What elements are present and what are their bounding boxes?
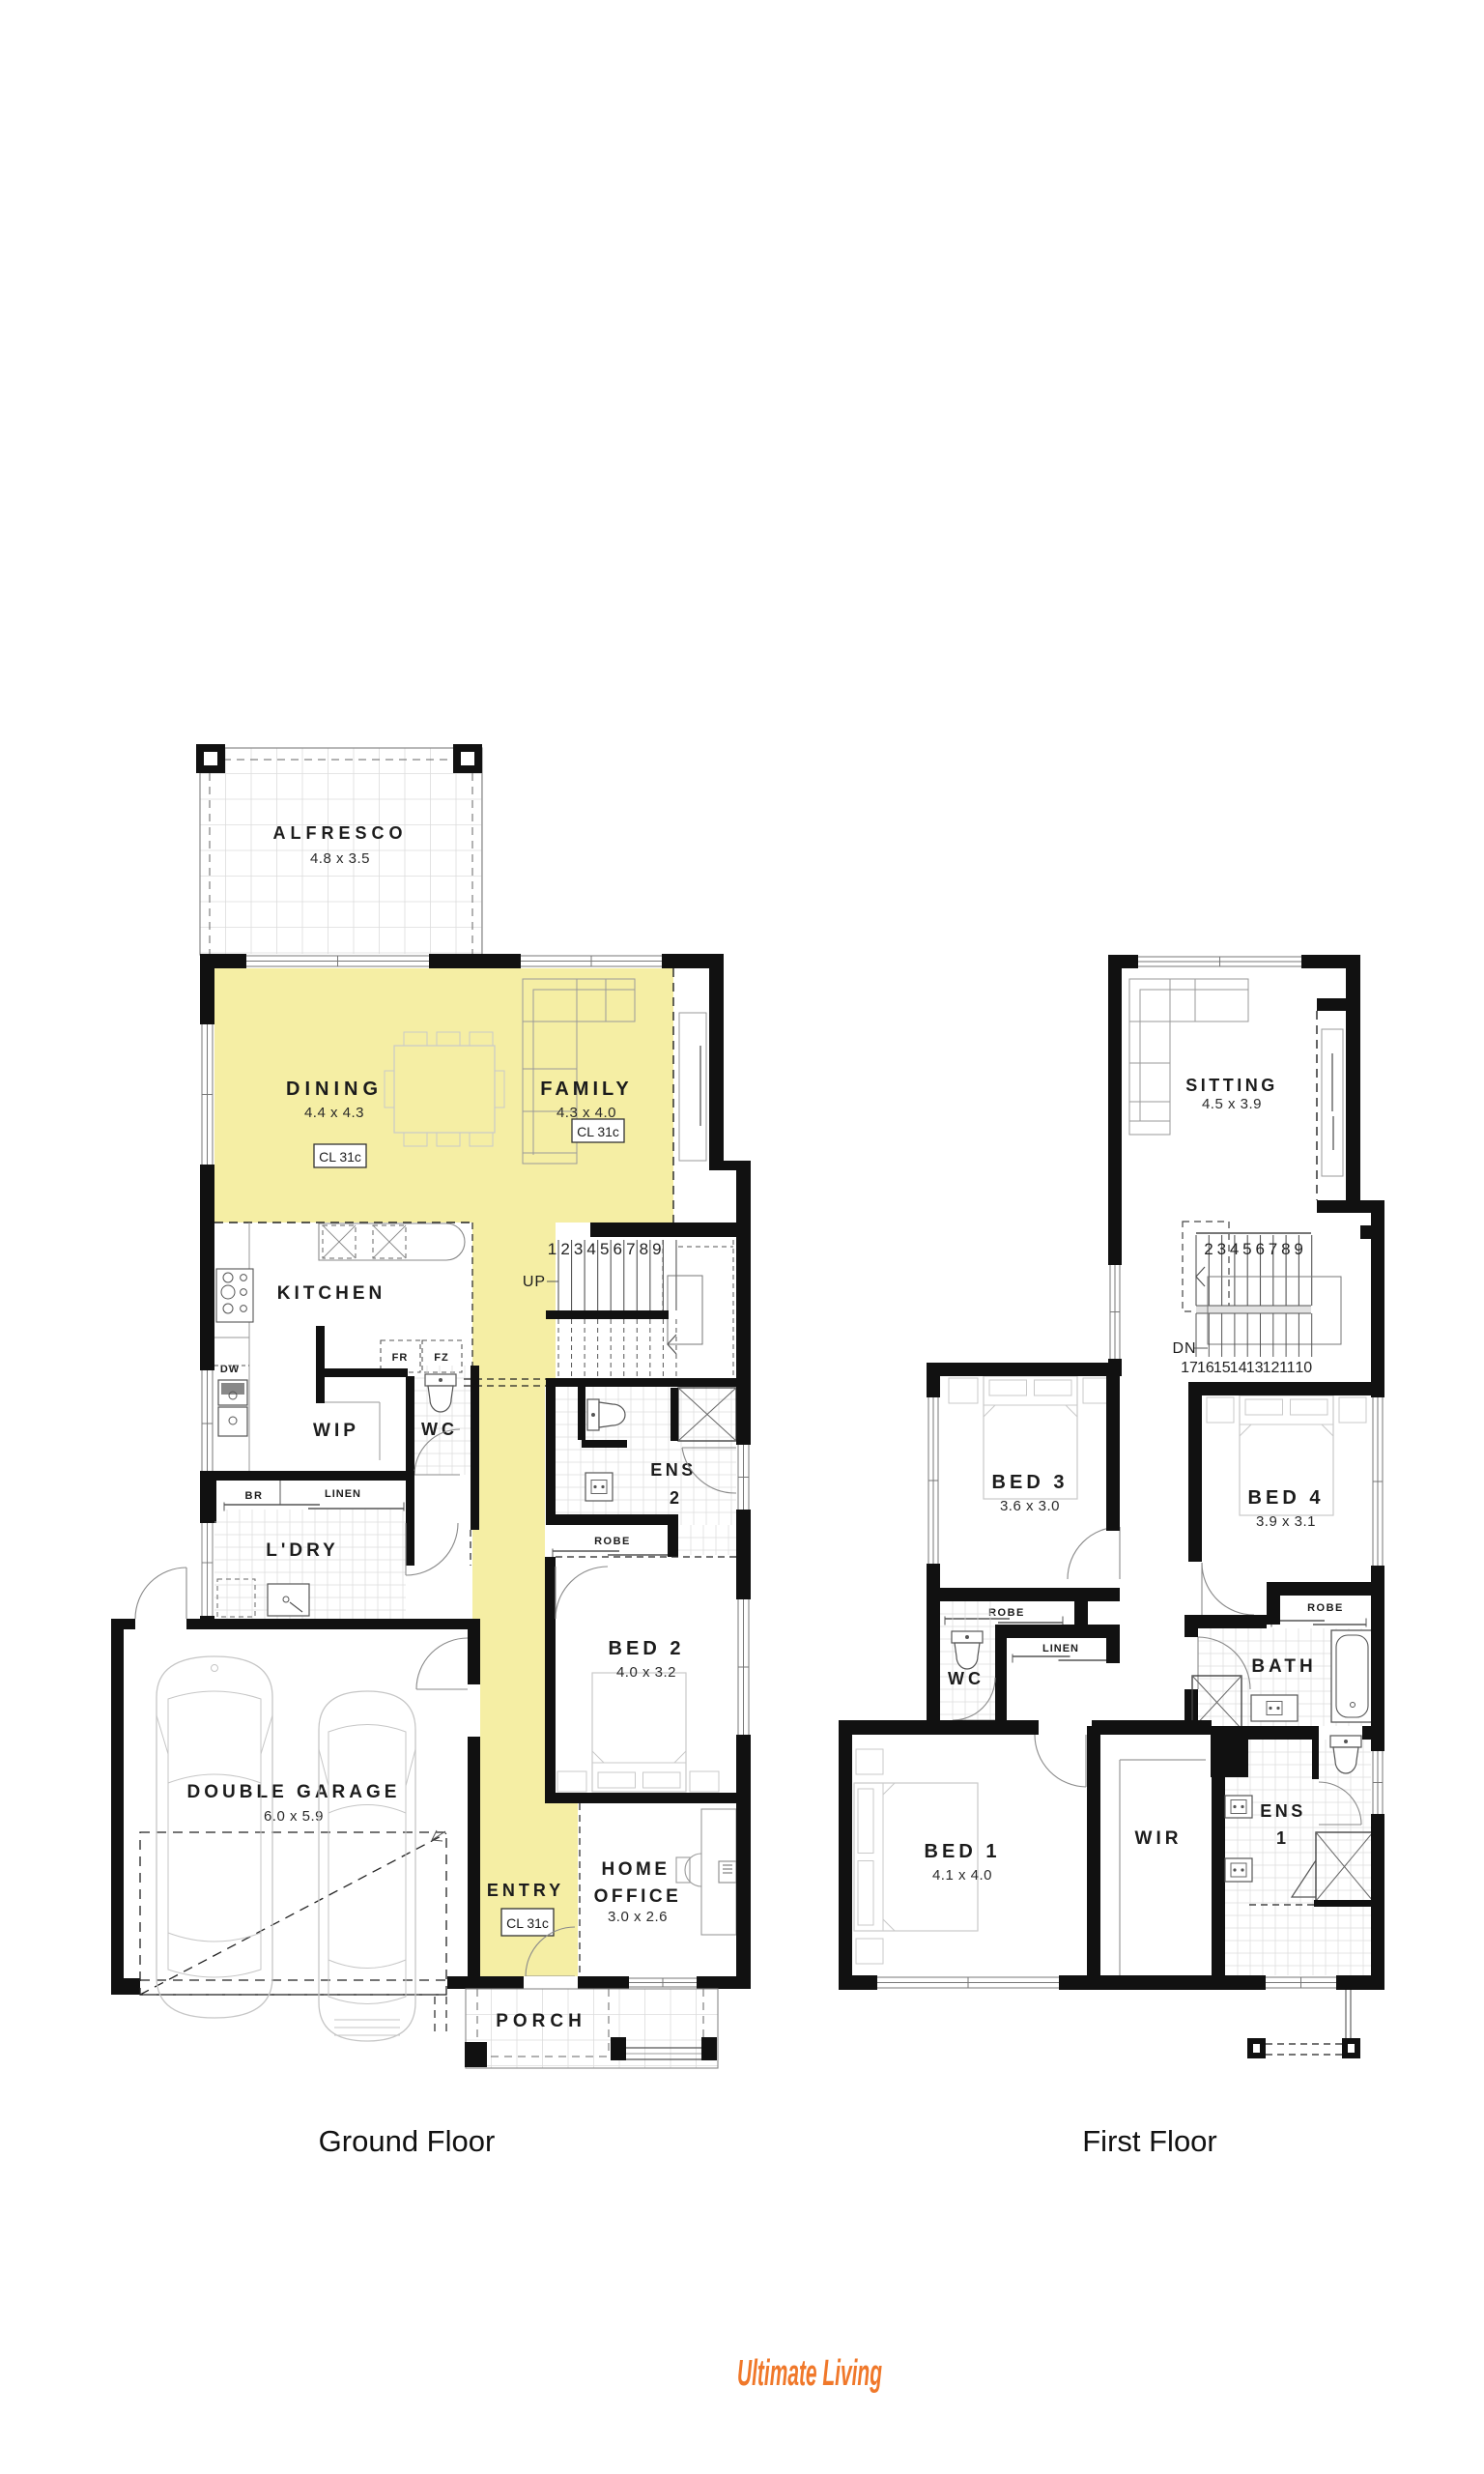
svg-text:ROBE: ROBE bbox=[988, 1607, 1025, 1619]
svg-text:7: 7 bbox=[626, 1240, 635, 1258]
svg-text:1: 1 bbox=[548, 1240, 556, 1258]
svg-text:15: 15 bbox=[1213, 1360, 1231, 1376]
svg-text:BED 4: BED 4 bbox=[1248, 1487, 1325, 1509]
svg-text:17: 17 bbox=[1181, 1360, 1198, 1376]
svg-text:4.1 x 4.0: 4.1 x 4.0 bbox=[932, 1867, 992, 1884]
svg-text:WIP: WIP bbox=[313, 1421, 359, 1441]
svg-text:WC: WC bbox=[421, 1420, 458, 1439]
svg-text:DN: DN bbox=[1172, 1340, 1196, 1357]
svg-text:9: 9 bbox=[1294, 1240, 1302, 1258]
svg-text:10: 10 bbox=[1295, 1360, 1312, 1376]
svg-text:SITTING: SITTING bbox=[1185, 1076, 1278, 1095]
svg-text:3.0 x 2.6: 3.0 x 2.6 bbox=[608, 1909, 668, 1925]
svg-text:4: 4 bbox=[1230, 1240, 1239, 1258]
svg-text:KITCHEN: KITCHEN bbox=[277, 1283, 385, 1304]
svg-text:ENS: ENS bbox=[1260, 1801, 1306, 1821]
svg-text:BED 1: BED 1 bbox=[925, 1841, 1001, 1862]
svg-text:WC: WC bbox=[948, 1669, 985, 1688]
svg-text:6: 6 bbox=[614, 1240, 622, 1258]
svg-text:9: 9 bbox=[652, 1240, 661, 1258]
svg-text:5: 5 bbox=[600, 1240, 609, 1258]
svg-text:LINEN: LINEN bbox=[1042, 1643, 1079, 1654]
svg-text:7: 7 bbox=[1269, 1240, 1277, 1258]
svg-text:PORCH: PORCH bbox=[496, 2011, 586, 2031]
svg-text:3: 3 bbox=[574, 1240, 583, 1258]
svg-text:ENTRY: ENTRY bbox=[487, 1881, 564, 1900]
svg-text:DINING: DINING bbox=[286, 1079, 383, 1100]
svg-text:CL 31c: CL 31c bbox=[577, 1124, 619, 1139]
svg-text:HOME: HOME bbox=[602, 1859, 671, 1880]
svg-text:FR: FR bbox=[392, 1352, 409, 1364]
svg-text:16: 16 bbox=[1197, 1360, 1214, 1376]
svg-text:Ground Floor: Ground Floor bbox=[319, 2124, 496, 2158]
svg-text:4: 4 bbox=[586, 1240, 595, 1258]
svg-text:4.8 x 3.5: 4.8 x 3.5 bbox=[310, 850, 370, 867]
svg-text:8: 8 bbox=[640, 1240, 648, 1258]
svg-text:L'DRY: L'DRY bbox=[266, 1540, 339, 1561]
svg-text:6: 6 bbox=[1255, 1240, 1264, 1258]
svg-text:11: 11 bbox=[1279, 1360, 1296, 1376]
svg-text:UP: UP bbox=[523, 1274, 546, 1290]
svg-text:DOUBLE GARAGE: DOUBLE GARAGE bbox=[187, 1782, 401, 1802]
svg-text:3.6 x 3.0: 3.6 x 3.0 bbox=[1000, 1498, 1060, 1514]
svg-text:ALFRESCO: ALFRESCO bbox=[273, 823, 408, 843]
svg-text:WIR: WIR bbox=[1135, 1828, 1183, 1849]
svg-text:4.0 x 3.2: 4.0 x 3.2 bbox=[616, 1664, 676, 1681]
svg-text:CL 31c: CL 31c bbox=[506, 1915, 549, 1931]
svg-text:2: 2 bbox=[670, 1488, 679, 1508]
svg-text:3.9 x 3.1: 3.9 x 3.1 bbox=[1256, 1513, 1316, 1530]
svg-text:14: 14 bbox=[1230, 1360, 1247, 1376]
svg-text:1: 1 bbox=[1276, 1828, 1286, 1848]
svg-text:2: 2 bbox=[560, 1240, 569, 1258]
svg-text:4.5 x 3.9: 4.5 x 3.9 bbox=[1202, 1096, 1262, 1112]
svg-text:CL 31c: CL 31c bbox=[319, 1149, 361, 1165]
svg-text:LINEN: LINEN bbox=[325, 1488, 361, 1500]
svg-text:First Floor: First Floor bbox=[1082, 2124, 1217, 2158]
svg-text:ENS: ENS bbox=[650, 1460, 697, 1480]
svg-text:8: 8 bbox=[1281, 1240, 1290, 1258]
svg-text:ROBE: ROBE bbox=[594, 1536, 631, 1547]
svg-text:4.4 x 4.3: 4.4 x 4.3 bbox=[304, 1105, 364, 1121]
svg-text:BR: BR bbox=[245, 1490, 264, 1502]
svg-text:13: 13 bbox=[1246, 1360, 1264, 1376]
svg-text:3: 3 bbox=[1217, 1240, 1226, 1258]
svg-text:OFFICE: OFFICE bbox=[594, 1886, 682, 1907]
svg-text:ROBE: ROBE bbox=[1307, 1602, 1344, 1614]
svg-text:Ultimate Living: Ultimate Living bbox=[737, 2353, 882, 2394]
svg-text:BATH: BATH bbox=[1251, 1656, 1316, 1677]
svg-text:FAMILY: FAMILY bbox=[540, 1079, 633, 1100]
svg-text:BED 2: BED 2 bbox=[609, 1638, 685, 1659]
svg-text:FZ: FZ bbox=[434, 1352, 448, 1364]
svg-text:12: 12 bbox=[1263, 1360, 1280, 1376]
svg-text:5: 5 bbox=[1242, 1240, 1251, 1258]
svg-text:2: 2 bbox=[1204, 1240, 1213, 1258]
svg-text:BED 3: BED 3 bbox=[992, 1472, 1069, 1493]
